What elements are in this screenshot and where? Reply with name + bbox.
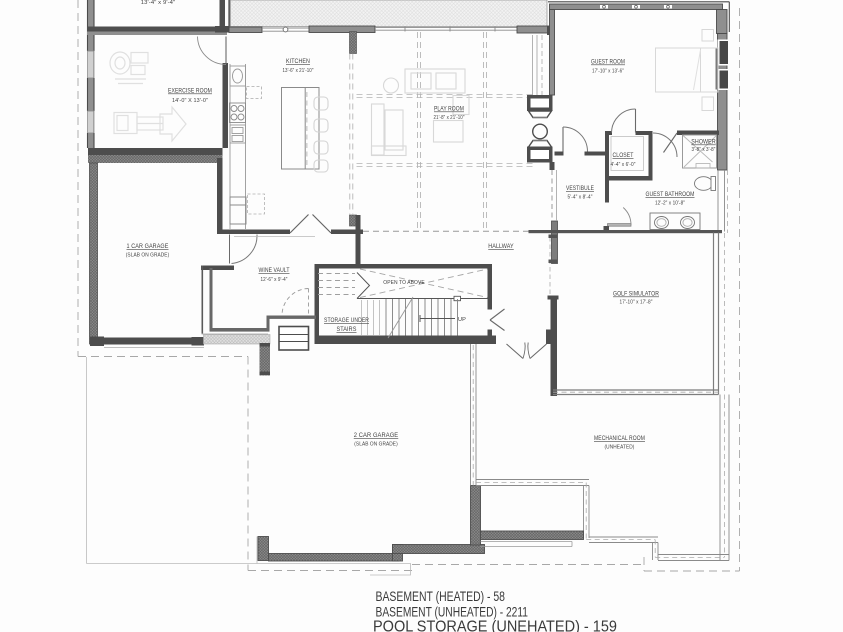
svg-text:5'-4" x 8'-4": 5'-4" x 8'-4" [568, 195, 593, 201]
svg-text:BASEMENT (HEATED) - 58: BASEMENT (HEATED) - 58 [376, 589, 506, 604]
svg-text:VESTIBULE: VESTIBULE [566, 186, 594, 192]
svg-text:4'-4" x 6'-0": 4'-4" x 6'-0" [611, 162, 636, 168]
svg-text:2 CAR GARAGE: 2 CAR GARAGE [354, 433, 399, 439]
svg-text:17'-10" x 17'-8": 17'-10" x 17'-8" [620, 300, 653, 306]
svg-text:GOLF SIMULATOR: GOLF SIMULATOR [613, 292, 659, 298]
svg-text:GUEST ROOM: GUEST ROOM [591, 60, 625, 66]
svg-text:21'-8" x 21'-10": 21'-8" x 21'-10" [434, 115, 465, 121]
svg-text:HALLWAY: HALLWAY [488, 244, 514, 250]
svg-text:12'-2" x 10'-8": 12'-2" x 10'-8" [655, 201, 685, 207]
svg-text:(UNHEATED): (UNHEATED) [605, 445, 635, 451]
svg-text:14'-0" X 13'-0": 14'-0" X 13'-0" [172, 98, 208, 104]
svg-text:(SLAB ON GRADE): (SLAB ON GRADE) [126, 253, 170, 259]
svg-text:GUEST BATHROOM: GUEST BATHROOM [646, 192, 695, 198]
svg-text:EXERCISE ROOM: EXERCISE ROOM [168, 89, 212, 95]
svg-text:13'-4" x 9'-4": 13'-4" x 9'-4" [141, 0, 176, 6]
svg-text:CLOSET: CLOSET [613, 153, 634, 159]
svg-text:STORAGE UNDER: STORAGE UNDER [324, 318, 369, 324]
svg-text:3'-8" x 3'-8": 3'-8" x 3'-8" [692, 147, 716, 153]
svg-text:17'-10" x 13'-6": 17'-10" x 13'-6" [592, 69, 624, 75]
svg-text:PLAY ROOM: PLAY ROOM [434, 107, 464, 113]
svg-text:WINE VAULT: WINE VAULT [259, 268, 290, 274]
svg-text:BASEMENT (UNHEATED) - 2211: BASEMENT (UNHEATED) - 2211 [376, 604, 529, 619]
svg-text:13'-6" x 21'-10": 13'-6" x 21'-10" [283, 68, 314, 74]
svg-text:MECHANICAL ROOM: MECHANICAL ROOM [594, 436, 645, 442]
svg-text:12'-6" x 9'-4": 12'-6" x 9'-4" [261, 277, 288, 283]
svg-text:1 CAR GARAGE: 1 CAR GARAGE [127, 244, 169, 250]
svg-text:POOL STORAGE (UNEHATED) - 159: POOL STORAGE (UNEHATED) - 159 [373, 619, 617, 632]
svg-text:UP: UP [458, 317, 466, 323]
svg-text:KITCHEN: KITCHEN [286, 59, 310, 65]
svg-text:SHOWER: SHOWER [691, 140, 716, 146]
svg-text:OPEN TO ABOVE: OPEN TO ABOVE [383, 280, 425, 286]
svg-text:STAIRS: STAIRS [337, 327, 357, 333]
svg-text:(SLAB ON GRADE): (SLAB ON GRADE) [354, 442, 398, 448]
